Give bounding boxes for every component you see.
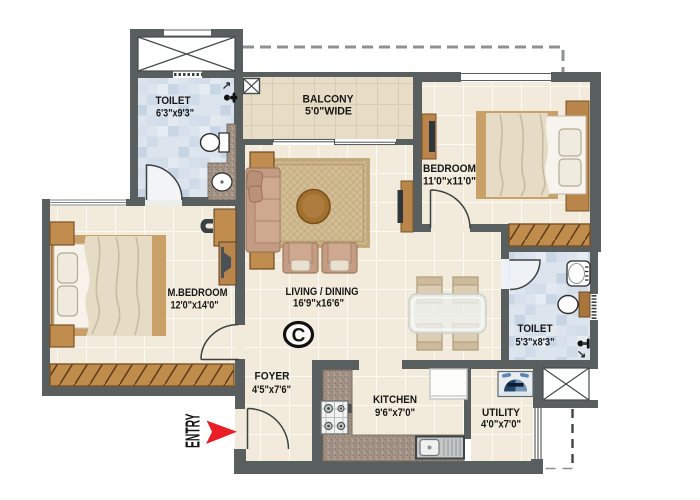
svg-text:11'0"x11'0": 11'0"x11'0" xyxy=(423,176,476,188)
svg-text:TOILET: TOILET xyxy=(518,323,553,335)
svg-text:6'3"x9'3": 6'3"x9'3" xyxy=(156,108,194,120)
svg-text:5'0"WIDE: 5'0"WIDE xyxy=(305,106,352,118)
svg-text:C: C xyxy=(292,326,306,347)
svg-text:M.BEDROOM: M.BEDROOM xyxy=(168,287,228,299)
svg-text:16'9"x16'6": 16'9"x16'6" xyxy=(293,298,344,310)
svg-text:TOILET: TOILET xyxy=(156,95,191,107)
svg-text:FOYER: FOYER xyxy=(255,371,290,383)
svg-text:LIVING / DINING: LIVING / DINING xyxy=(286,286,359,298)
svg-text:4'5"x7'6": 4'5"x7'6" xyxy=(252,384,291,396)
svg-text:BEDROOM: BEDROOM xyxy=(423,163,476,175)
svg-text:BALCONY: BALCONY xyxy=(303,94,355,106)
svg-text:9'6"x7'0": 9'6"x7'0" xyxy=(375,407,415,419)
svg-text:12'0"x14'0": 12'0"x14'0" xyxy=(171,300,219,312)
svg-text:ENTRY: ENTRY xyxy=(183,413,205,448)
svg-text:5'3"x8'3": 5'3"x8'3" xyxy=(516,337,555,349)
svg-text:UTILITY: UTILITY xyxy=(482,407,521,419)
svg-text:KITCHEN: KITCHEN xyxy=(373,394,417,406)
svg-text:4'0"x7'0": 4'0"x7'0" xyxy=(481,419,521,431)
